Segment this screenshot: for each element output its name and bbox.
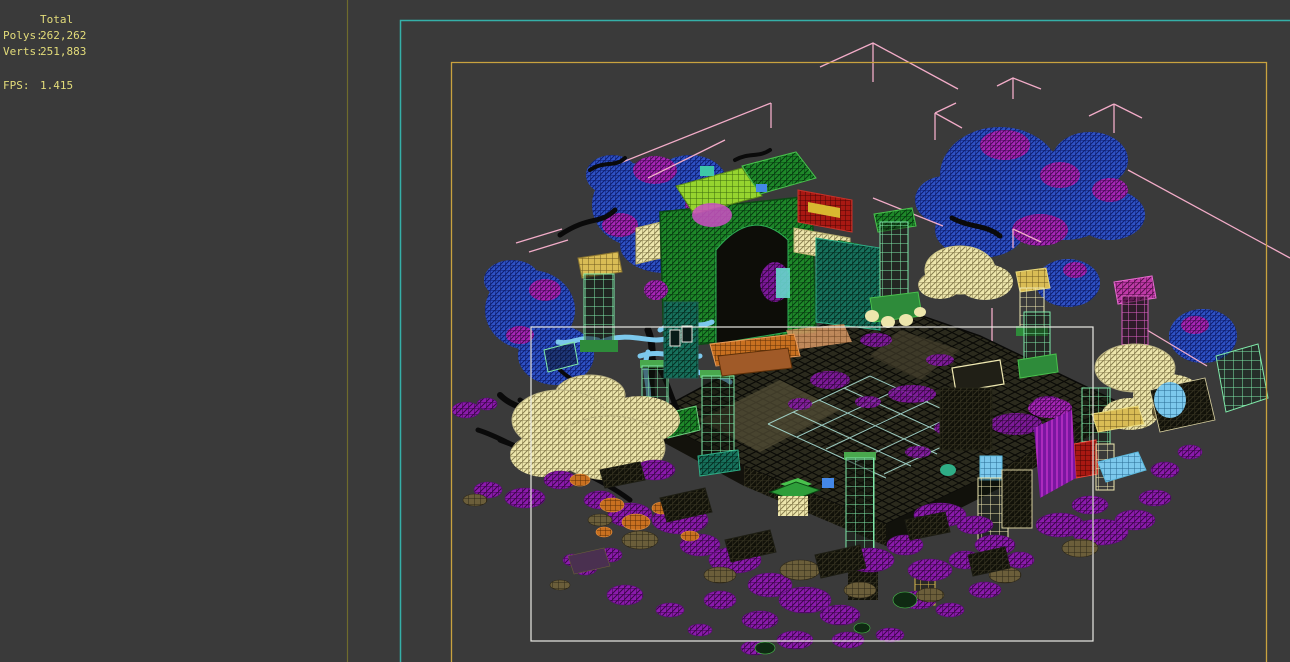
- stats-fps-row: FPS:1.415: [3, 78, 73, 94]
- tower-right-mint: [1018, 312, 1058, 378]
- statistics-overlay: Total Polys:262,262 Verts:251,883 FPS:1.…: [0, 0, 340, 120]
- stats-polys-row: Polys:262,262: [3, 28, 86, 44]
- window-building: [664, 302, 698, 378]
- fps-label: FPS:: [3, 78, 40, 94]
- stats-verts-row: Verts:251,883: [3, 44, 86, 60]
- verts-label: Verts:: [3, 44, 40, 60]
- verts-value: 251,883: [40, 45, 86, 58]
- stats-total-header: Total: [40, 12, 73, 28]
- polys-value: 262,262: [40, 29, 86, 42]
- red-crate: [1074, 440, 1098, 478]
- roof-teal-block: [700, 166, 714, 176]
- viewport[interactable]: Total Polys:262,262 Verts:251,883 FPS:1.…: [0, 0, 1290, 662]
- tower-bottom-center: [844, 452, 878, 600]
- roof-blue-block: [756, 184, 767, 192]
- tower-center-left: [698, 370, 740, 476]
- polys-label: Polys:: [3, 28, 40, 44]
- fps-value: 1.415: [40, 79, 73, 92]
